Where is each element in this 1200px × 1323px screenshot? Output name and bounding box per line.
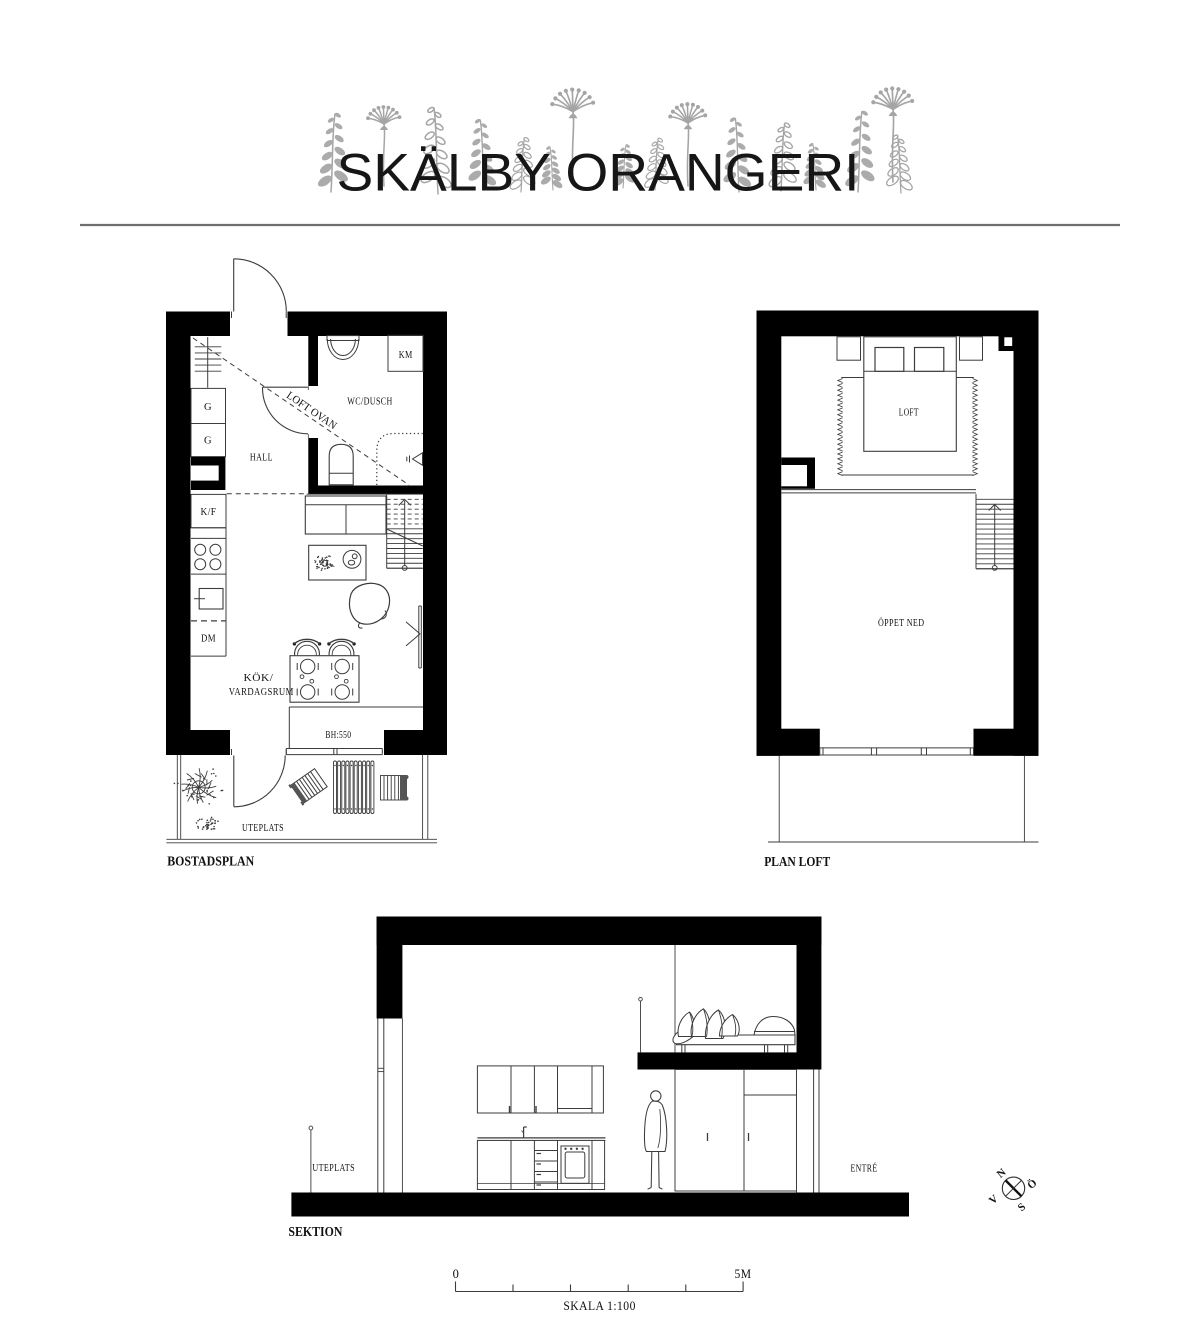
svg-text:UTEPLATS: UTEPLATS bbox=[242, 823, 284, 834]
svg-text:SKALA 1:100: SKALA 1:100 bbox=[563, 1299, 636, 1313]
svg-text:SKÄLBY ORANGERI: SKÄLBY ORANGERI bbox=[337, 144, 860, 203]
svg-text:K/F: K/F bbox=[201, 507, 217, 518]
svg-text:WC/DUSCH: WC/DUSCH bbox=[347, 397, 393, 408]
svg-text:KM: KM bbox=[399, 350, 413, 361]
svg-text:LOFT: LOFT bbox=[899, 408, 919, 419]
svg-text:BOSTADSPLAN: BOSTADSPLAN bbox=[167, 855, 254, 870]
svg-text:0: 0 bbox=[453, 1267, 460, 1281]
svg-text:KÖK/: KÖK/ bbox=[244, 672, 274, 684]
svg-text:BH:550: BH:550 bbox=[325, 730, 351, 741]
svg-text:PLAN LOFT: PLAN LOFT bbox=[764, 855, 831, 870]
svg-text:G: G bbox=[204, 436, 212, 447]
svg-text:G: G bbox=[204, 402, 212, 413]
svg-text:ÖPPET NED: ÖPPET NED bbox=[878, 617, 925, 629]
svg-text:5M: 5M bbox=[735, 1267, 752, 1281]
svg-text:HALL: HALL bbox=[250, 453, 273, 464]
svg-text:VARDAGSRUM: VARDAGSRUM bbox=[229, 687, 294, 698]
svg-text:ENTRÉ: ENTRÉ bbox=[851, 1163, 878, 1175]
svg-text:DM: DM bbox=[201, 634, 216, 645]
svg-text:UTEPLATS: UTEPLATS bbox=[312, 1163, 355, 1174]
svg-text:SEKTION: SEKTION bbox=[288, 1225, 342, 1240]
